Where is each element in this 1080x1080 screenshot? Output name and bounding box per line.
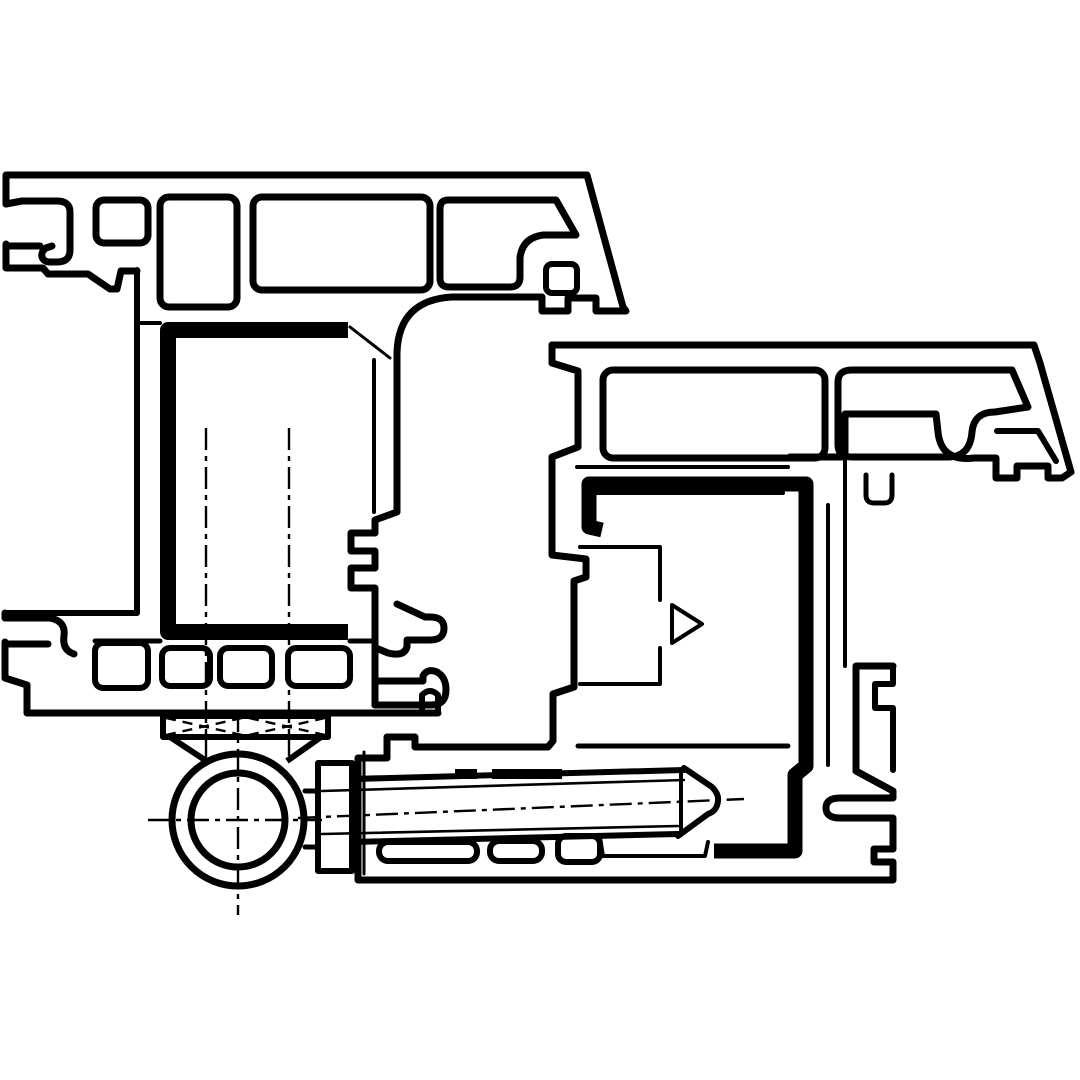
- bracket-plate: [163, 716, 328, 737]
- steel-reinforcement-channel: [168, 330, 348, 632]
- sash-rail-tray: [600, 838, 708, 856]
- frame-chamber-3: [160, 197, 237, 307]
- bracket-slant-right: [287, 737, 321, 761]
- sash-profile: [358, 345, 1071, 880]
- frame-slot-bottom: [5, 613, 74, 654]
- technical-drawing: [0, 0, 1080, 1080]
- bracket-slant-left: [170, 737, 208, 762]
- frame-chamber-2: [96, 200, 148, 243]
- sash-clip-top: [580, 547, 660, 600]
- sash-chamber-a: [603, 370, 825, 458]
- drawing-stage: [0, 0, 1080, 1080]
- sash-main-gasket: [589, 484, 806, 851]
- frame-claw-top-arm: [376, 604, 444, 654]
- sash-clip-bottom: [580, 648, 660, 684]
- frame-rail-chamber-4: [288, 648, 350, 686]
- frame-tooth-pocket: [546, 264, 577, 293]
- frame-rail-chamber-3: [220, 648, 272, 686]
- sash-rail-chamber-3: [558, 836, 600, 862]
- bracket-x-lashing: [166, 718, 325, 735]
- frame-rail-chamber-1: [95, 643, 148, 688]
- gasket-seals: [455, 484, 806, 851]
- sash-claw-inner-hook: [997, 431, 1056, 461]
- sash-wall-slot: [866, 475, 892, 503]
- sash-rail-chamber-1: [379, 842, 477, 861]
- frame-slot-top-chamber: [6, 201, 70, 262]
- screw-shank-bottom: [352, 834, 678, 842]
- sash-clip-triangle: [672, 605, 702, 643]
- frame-inner-diagonal: [350, 327, 390, 358]
- frame-rail-chamber-2: [162, 648, 210, 686]
- frame-chamber-5: [440, 200, 576, 287]
- sash-right-hook: [875, 668, 893, 770]
- frame-chamber-4: [253, 197, 430, 290]
- screw-thread-top: [322, 780, 684, 791]
- sash-rail-chamber-2: [490, 841, 542, 861]
